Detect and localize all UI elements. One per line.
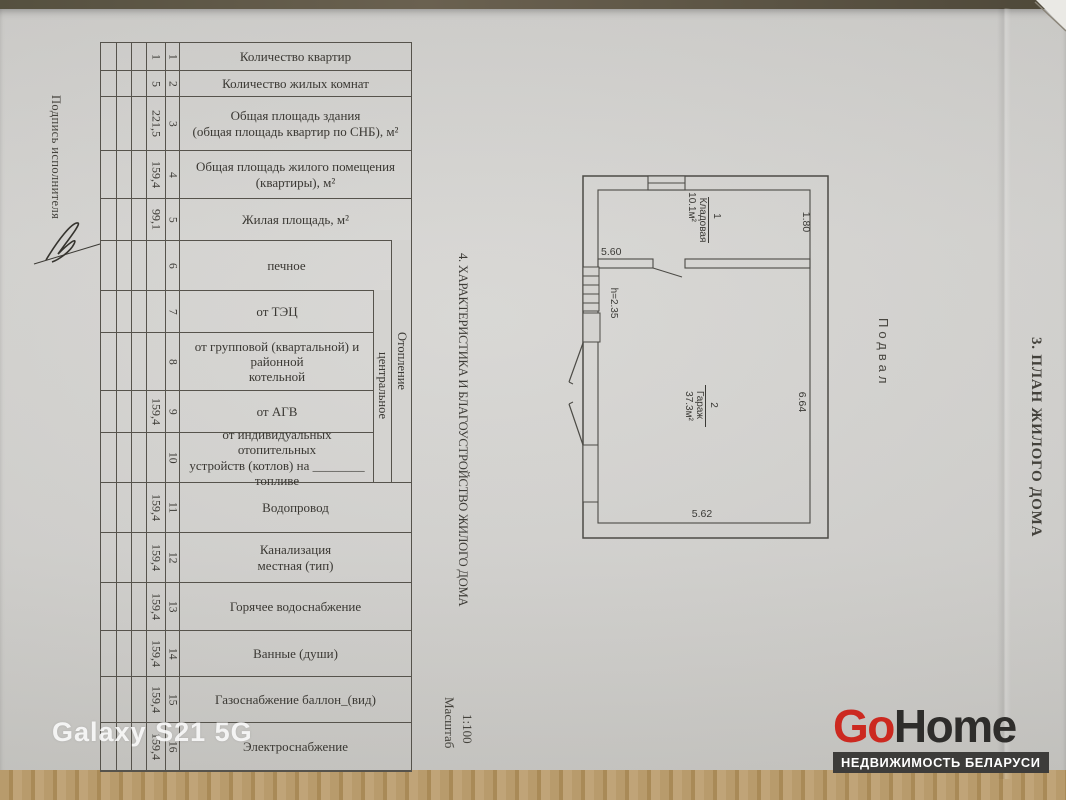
grid-cell — [132, 151, 147, 198]
row-label: Количество квартир — [180, 43, 411, 70]
table-row: 99,15Жилая площадь, м² — [101, 199, 411, 241]
grid-cell — [117, 199, 132, 240]
grid-cell — [132, 583, 147, 630]
grid-cell — [117, 151, 132, 198]
grid-cell — [132, 433, 147, 482]
section3-title: 3. ПЛАН ЖИЛОГО ДОМА — [1027, 337, 1044, 537]
underlying-sheet-corner — [1018, 0, 1066, 42]
gohome-logo: GoHome НЕДВИЖИМОСТЬ БЕЛАРУСИ — [833, 703, 1023, 773]
row-number-cell: 12 — [166, 533, 180, 582]
signature-caption: Подпись исполнителя — [48, 95, 63, 219]
row-number-cell: 11 — [166, 483, 180, 532]
paper-crease — [997, 8, 1011, 779]
grid-cell — [101, 199, 117, 240]
grid-cell — [101, 151, 117, 198]
grid-cell — [132, 631, 147, 676]
floor-plan: 1 Кладовая 10.1м² 2 Гараж 37.3м² 5.60 1.… — [565, 155, 865, 555]
value-cell: 159,4 — [147, 151, 166, 198]
row-number-cell: 1 — [166, 43, 180, 70]
entrance-pit — [583, 445, 598, 502]
grid-cell — [132, 97, 147, 150]
value-cell: 1 — [147, 43, 166, 70]
section4-title: 4. ХАРАКТЕРИСТИКА И БЛАГОУСТРОЙСТВО ЖИЛО… — [455, 253, 470, 606]
table-row: 52Количество жилых комнат — [101, 71, 411, 97]
row-number-cell: 2 — [166, 71, 180, 96]
row-label: печное — [180, 241, 411, 290]
table-row: 221,53Общая площадь здания (общая площад… — [101, 97, 411, 151]
dim-storeroom-width: 5.60 — [601, 246, 622, 258]
grid-cell — [101, 43, 117, 70]
dim-garage-depth: 6.64 — [796, 392, 808, 413]
grid-cell — [132, 533, 147, 582]
grid-cell — [132, 483, 147, 532]
grid-cell — [101, 333, 117, 390]
grid-cell — [101, 391, 117, 432]
grid-cell — [101, 583, 117, 630]
value-cell: 99,1 — [147, 199, 166, 240]
grid-cell — [117, 433, 132, 482]
row-label: Водопровод — [180, 483, 411, 532]
value-cell: 221,5 — [147, 97, 166, 150]
basement-caption: Подвал — [876, 318, 891, 387]
row-number-cell: 4 — [166, 151, 180, 198]
grid-cell — [117, 391, 132, 432]
grid-cell — [132, 677, 147, 722]
table-surface-bottom — [0, 770, 1066, 800]
grid-cell — [117, 97, 132, 150]
value-cell — [147, 241, 166, 290]
value-cell: 159,4 — [147, 631, 166, 676]
row-label: Газоснабжение баллон_(вид) — [180, 677, 411, 722]
row-number-cell: 13 — [166, 583, 180, 630]
row-label: Канализация местная (тип) — [180, 533, 411, 582]
row-number-cell: 10 — [166, 433, 180, 482]
grid-cell — [117, 631, 132, 676]
entrance-landing — [583, 313, 600, 342]
row-label: Жилая площадь, м² — [180, 199, 411, 240]
row-label: Общая площадь жилого помещения (квартиры… — [180, 151, 411, 198]
row-label: Горячее водоснабжение — [180, 583, 411, 630]
grid-cell — [132, 291, 147, 332]
grid-cell — [132, 71, 147, 96]
partition-wall — [685, 259, 810, 268]
characteristics-table: 11Количество квартир 52Количество жилых … — [100, 42, 412, 772]
table-row: 7от ТЭЦ — [101, 291, 411, 333]
gohome-tagline: НЕДВИЖИМОСТЬ БЕЛАРУСИ — [833, 752, 1049, 773]
row-number-cell: 3 — [166, 97, 180, 150]
grid-cell — [132, 391, 147, 432]
gohome-home: Home — [894, 700, 1016, 752]
grid-cell — [101, 71, 117, 96]
room1-number: 1 — [711, 213, 722, 219]
table-row: 10от индивидуальных отопительных устройс… — [101, 433, 411, 483]
dim-garage-width: 5.62 — [692, 508, 713, 520]
value-cell: 159,4 — [147, 391, 166, 432]
grid-cell — [101, 433, 117, 482]
scale-value: 1:100 — [459, 714, 475, 744]
grid-cell — [117, 483, 132, 532]
row-number-cell: 5 — [166, 199, 180, 240]
grid-cell — [101, 533, 117, 582]
heating-central-column: центральное — [373, 290, 391, 483]
grid-cell — [132, 241, 147, 290]
entrance-steps — [583, 267, 599, 311]
value-cell: 5 — [147, 71, 166, 96]
grid-cell — [132, 199, 147, 240]
door-leaf — [653, 268, 682, 277]
grid-cell — [132, 333, 147, 390]
grid-cell — [101, 677, 117, 722]
grid-cell — [117, 291, 132, 332]
row-number-cell: 7 — [166, 291, 180, 332]
grid-cell — [101, 97, 117, 150]
room2-area: 37.3м² — [683, 391, 694, 421]
row-number-cell: 14 — [166, 631, 180, 676]
dim-ceiling-height: h=2.35 — [608, 288, 619, 319]
table-row: 159,412Канализация местная (тип) — [101, 533, 411, 583]
grid-cell — [117, 533, 132, 582]
table-surface-top — [0, 0, 1066, 9]
grid-cell — [117, 333, 132, 390]
device-watermark: Galaxy S21 5G — [52, 717, 253, 748]
row-number-cell: 15 — [166, 677, 180, 722]
table-row: 159,411Водопровод — [101, 483, 411, 533]
partition-wall — [598, 259, 653, 268]
value-cell: 159,4 — [147, 677, 166, 722]
scale-caption: Масштаб — [441, 697, 457, 748]
room2-name: Гараж — [694, 391, 705, 420]
row-label: Ванные (души) — [180, 631, 411, 676]
grid-cell — [117, 677, 132, 722]
value-cell — [147, 291, 166, 332]
gohome-wordmark: GoHome — [833, 703, 1023, 751]
grid-cell — [101, 291, 117, 332]
dim-storeroom-depth: 1.80 — [800, 212, 812, 233]
table-row: 159,44Общая площадь жилого помещения (кв… — [101, 151, 411, 199]
room1-area: 10.1м² — [686, 192, 697, 222]
value-cell: 159,4 — [147, 583, 166, 630]
value-cell — [147, 433, 166, 482]
grid-cell — [117, 241, 132, 290]
table-row: 6печное — [101, 241, 411, 291]
row-label: Общая площадь здания (общая площадь квар… — [180, 97, 411, 150]
grid-cell — [101, 241, 117, 290]
row-number-cell: 8 — [166, 333, 180, 390]
value-cell: 159,4 — [147, 483, 166, 532]
room2-number: 2 — [708, 402, 719, 408]
table-row: 159,414Ванные (души) — [101, 631, 411, 677]
grid-cell — [117, 71, 132, 96]
table-row: 11Количество квартир — [101, 43, 411, 71]
value-cell: 159,4 — [147, 533, 166, 582]
grid-cell — [117, 583, 132, 630]
signature — [28, 214, 108, 272]
grid-cell — [117, 43, 132, 70]
value-cell — [147, 333, 166, 390]
table-row: 8от групповой (квартальной) и районной к… — [101, 333, 411, 391]
gohome-go: Go — [833, 700, 894, 752]
table-row: 159,413Горячее водоснабжение — [101, 583, 411, 631]
row-number-cell: 6 — [166, 241, 180, 290]
grid-cell — [132, 43, 147, 70]
room1-name: Кладовая — [697, 198, 708, 243]
heating-group-column: Отопление — [391, 240, 411, 483]
row-label: Количество жилых комнат — [180, 71, 411, 96]
row-number-cell: 9 — [166, 391, 180, 432]
grid-cell — [101, 631, 117, 676]
grid-cell — [101, 483, 117, 532]
